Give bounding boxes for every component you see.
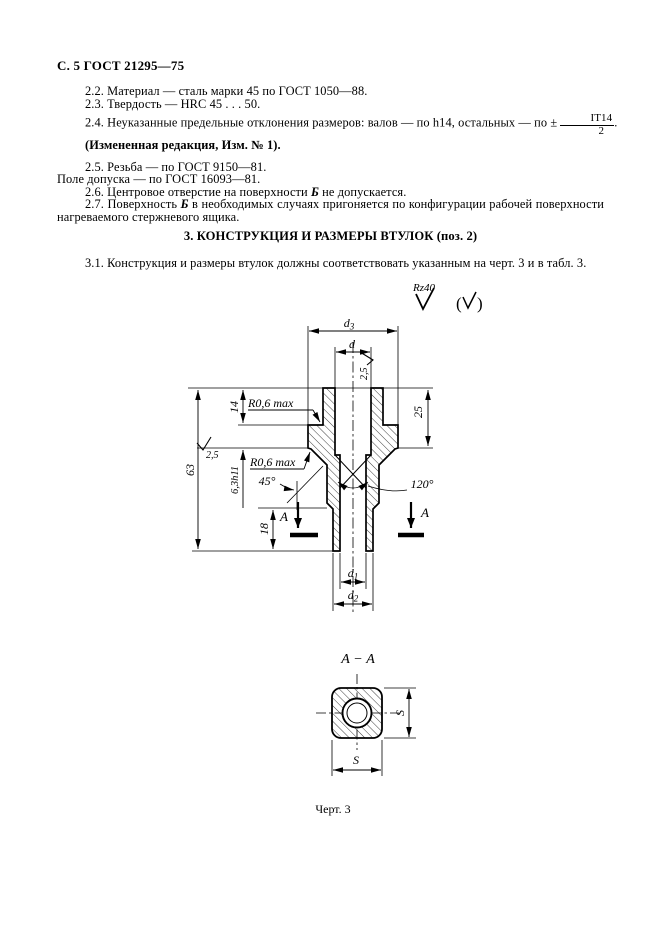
section-view-title: А − А: [340, 652, 375, 667]
figure-caption: Черт. 3: [315, 802, 350, 816]
dim-label-14: 14: [227, 401, 241, 413]
dim-label-flange: 6,3h11: [230, 466, 241, 494]
dim-label-s-bottom: S: [353, 753, 359, 767]
paren-right: ): [477, 294, 483, 313]
chamfer-angle-callout: 45°: [259, 466, 323, 510]
bushing-technical-drawing: Rz40 ( ): [0, 0, 661, 936]
fillet-radius-label: R0,6 max: [247, 396, 294, 410]
dim-label-d1: d1: [348, 566, 359, 582]
fillet-callout-bottom: R0,6 max: [249, 452, 310, 469]
bushing-wall-left: [308, 388, 340, 551]
roughness-check-small-icon: [463, 292, 476, 308]
section-view-a-a: А − А S S: [316, 652, 416, 776]
angle-45-label: 45°: [259, 474, 276, 488]
roughness-bore-label: 2,5: [359, 368, 370, 381]
dim-label-25: 25: [411, 406, 425, 418]
fillet-radius-label: R0,6 max: [249, 455, 296, 469]
cone-angle-callout: 120°: [338, 477, 434, 491]
bushing-wall-right: [366, 388, 398, 551]
dim-label-18: 18: [257, 523, 271, 535]
roughness-flange-mark: 2,5: [197, 437, 219, 461]
gost-document-page: С. 5 ГОСТ 21295—75 2.2. Материал — сталь…: [0, 0, 661, 936]
roughness-flange-label: 2,5: [206, 450, 219, 461]
general-roughness-mark: Rz40 ( ): [412, 282, 483, 313]
extension-lines: [188, 326, 433, 611]
angle-120-label: 120°: [411, 477, 434, 491]
dim-label-d: d: [349, 337, 356, 351]
dim-label-d3: d3: [344, 316, 355, 332]
section-plane-marks: А А: [279, 502, 429, 535]
section-label-a-left: А: [279, 509, 288, 524]
fillet-callout-top: R0,6 max: [247, 396, 320, 422]
dim-label-d2: d2: [348, 588, 359, 604]
section-label-a-right: А: [420, 505, 429, 520]
bore-hole-chamfer: [347, 703, 367, 723]
dim-label-s-right: S: [393, 710, 407, 716]
paren-left: (: [456, 294, 462, 313]
dim-label-63: 63: [183, 464, 197, 476]
